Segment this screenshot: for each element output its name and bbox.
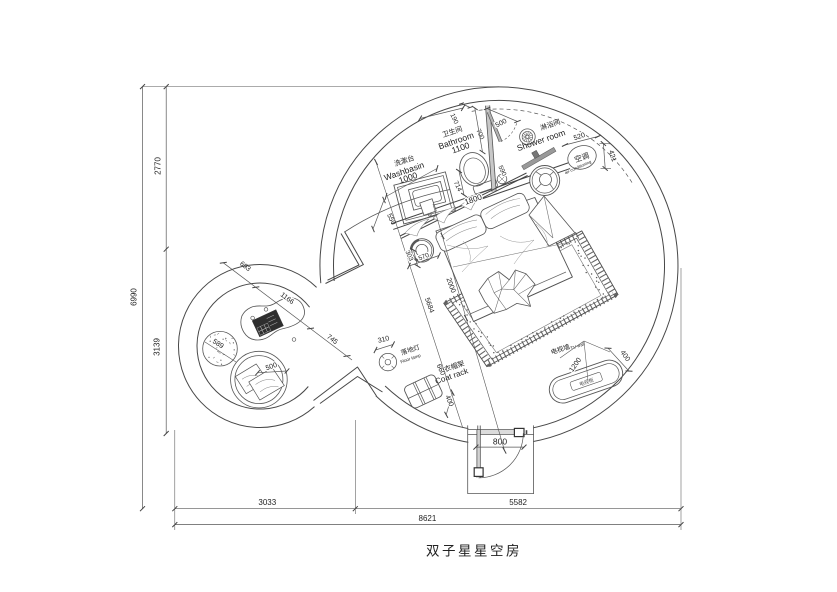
- svg-text:3139: 3139: [153, 338, 162, 356]
- svg-text:3033: 3033: [258, 498, 276, 507]
- svg-text:8621: 8621: [419, 514, 437, 523]
- svg-text:5582: 5582: [509, 498, 527, 507]
- svg-text:双子星星空房: 双子星星空房: [426, 544, 522, 559]
- svg-text:2770: 2770: [153, 157, 162, 175]
- svg-text:6990: 6990: [130, 288, 139, 306]
- svg-text:800: 800: [493, 436, 507, 446]
